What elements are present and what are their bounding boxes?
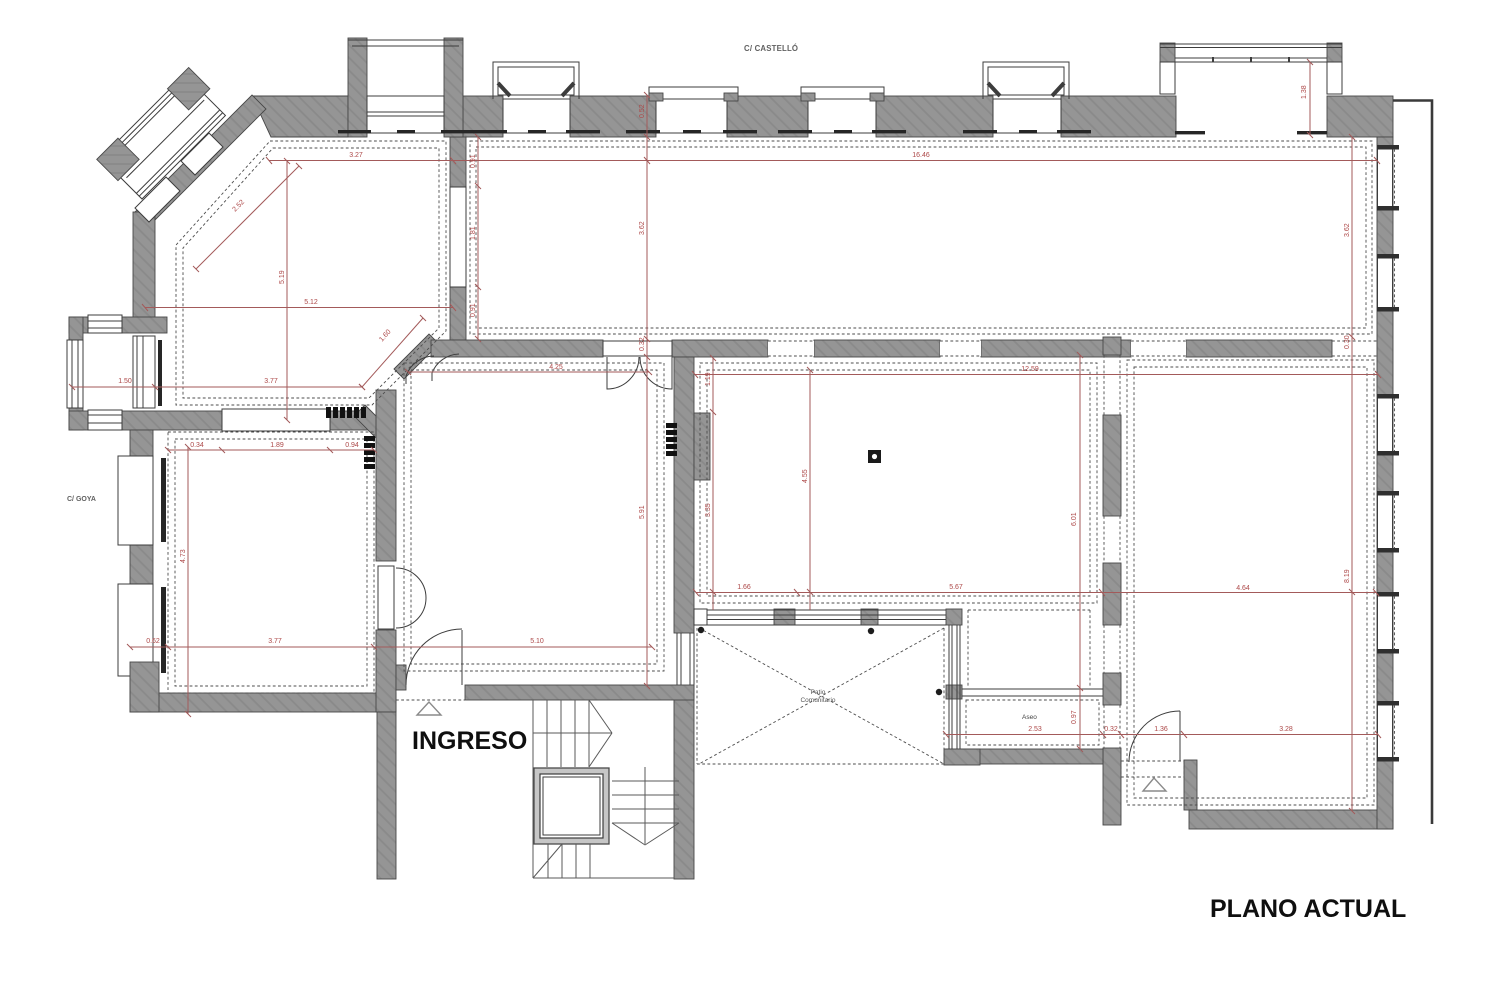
svg-text:4.64: 4.64 (1236, 585, 1250, 592)
svg-text:3.27: 3.27 (349, 152, 363, 159)
svg-text:4.55: 4.55 (802, 469, 809, 483)
svg-text:1.50: 1.50 (118, 378, 132, 385)
svg-text:3.77: 3.77 (264, 378, 278, 385)
svg-text:1.89: 1.89 (270, 442, 284, 449)
svg-text:0.52: 0.52 (639, 104, 646, 118)
svg-text:4.25: 4.25 (549, 364, 563, 371)
svg-text:0.91: 0.91 (470, 303, 477, 317)
svg-text:3.62: 3.62 (639, 221, 646, 235)
svg-text:1.38: 1.38 (1301, 85, 1308, 99)
svg-text:6.01: 6.01 (1071, 512, 1078, 526)
svg-text:0.32: 0.32 (1104, 726, 1118, 733)
svg-text:Comunitario: Comunitario (800, 697, 835, 704)
svg-text:0.32: 0.32 (639, 337, 646, 351)
svg-text:3.62: 3.62 (1344, 223, 1351, 237)
svg-text:1.66: 1.66 (737, 584, 751, 591)
svg-text:Aseo: Aseo (1022, 714, 1037, 721)
svg-text:0.94: 0.94 (345, 442, 359, 449)
svg-text:0.91: 0.91 (470, 154, 477, 168)
svg-text:5.12: 5.12 (304, 299, 318, 306)
svg-text:1.36: 1.36 (1154, 726, 1168, 733)
svg-text:3.35: 3.35 (705, 503, 712, 517)
svg-text:8.19: 8.19 (1344, 569, 1351, 583)
svg-text:0.97: 0.97 (1071, 710, 1078, 724)
svg-text:1.19: 1.19 (705, 372, 712, 386)
svg-text:5.10: 5.10 (530, 638, 544, 645)
svg-text:INGRESO: INGRESO (412, 727, 527, 755)
svg-text:3.77: 3.77 (268, 638, 282, 645)
svg-text:5.19: 5.19 (279, 270, 286, 284)
svg-text:Patio: Patio (811, 689, 826, 696)
svg-text:PLANO ACTUAL: PLANO ACTUAL (1210, 895, 1406, 923)
svg-text:3.28: 3.28 (1279, 726, 1293, 733)
svg-text:C/ CASTELLÓ: C/ CASTELLÓ (744, 44, 798, 53)
svg-text:4.73: 4.73 (180, 549, 187, 563)
svg-text:0.30: 0.30 (1344, 335, 1351, 349)
svg-text:5.67: 5.67 (949, 584, 963, 591)
svg-text:0.34: 0.34 (190, 442, 204, 449)
svg-text:C/ GOYA: C/ GOYA (67, 496, 96, 503)
svg-text:5.91: 5.91 (639, 505, 646, 519)
svg-text:12.59: 12.59 (1021, 366, 1039, 373)
svg-text:1.81: 1.81 (470, 226, 477, 240)
svg-text:0.62: 0.62 (146, 638, 160, 645)
svg-text:16.46: 16.46 (912, 152, 930, 159)
svg-text:2.53: 2.53 (1028, 726, 1042, 733)
